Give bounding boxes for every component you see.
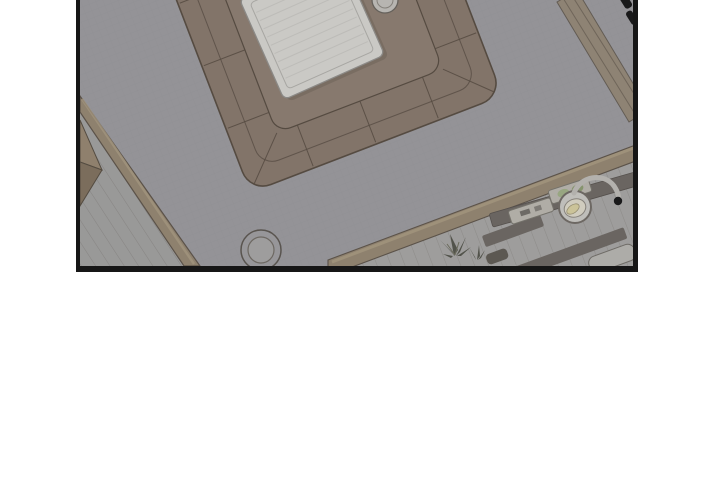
page: [0, 0, 720, 500]
panel-dim-overlay: [80, 0, 633, 266]
room-scene: [80, 0, 633, 266]
comic-panel: [76, 0, 638, 272]
